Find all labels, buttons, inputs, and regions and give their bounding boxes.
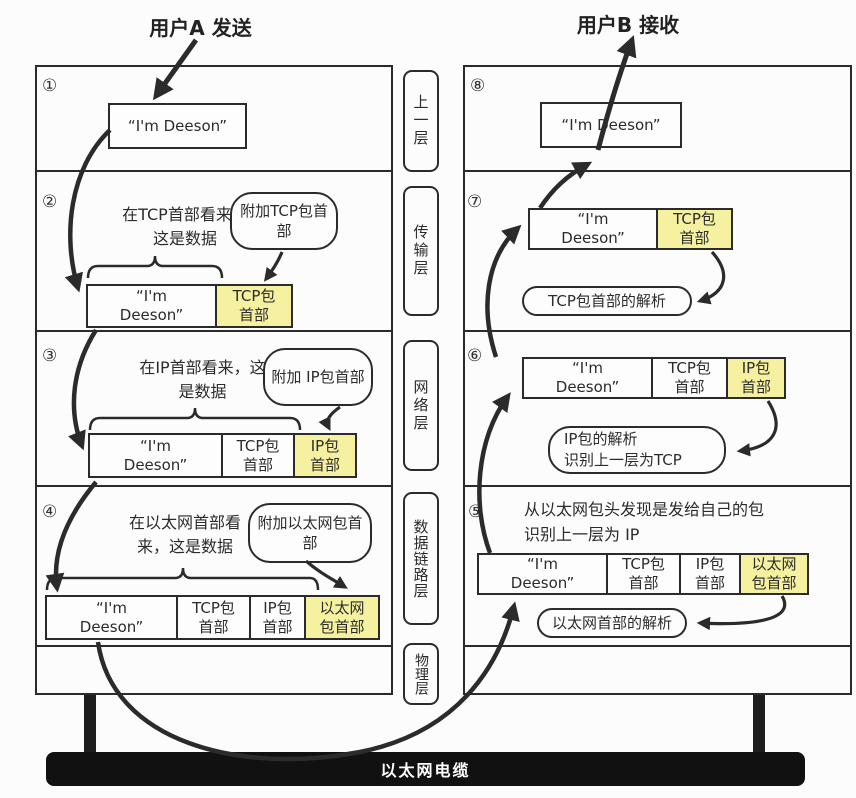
receiver-title: 用户B 接收 bbox=[558, 9, 698, 38]
ethernet-cable-bar: 以太网电缆 bbox=[46, 752, 805, 786]
step-2-data-segment: “I'mDeeson” bbox=[86, 284, 217, 328]
step-3-data-segment: “I'mDeeson” bbox=[88, 433, 223, 478]
step-2-tcp-header-segment: TCP包首部 bbox=[215, 284, 293, 328]
step-3-note-line1: 在IP首部看来，这 bbox=[120, 356, 285, 380]
step-8-message-box: “I'm Deeson” bbox=[540, 102, 682, 148]
step-3-ip-header-segment: IP包首部 bbox=[293, 433, 357, 478]
data-line1: “I'm bbox=[572, 359, 603, 378]
step-6-data-segment: “I'mDeeson” bbox=[522, 357, 653, 399]
step-7-number: ⑦ bbox=[467, 192, 482, 212]
step-2-number: ② bbox=[42, 192, 57, 212]
step-6-ip-header-segment: IP包首部 bbox=[726, 357, 786, 399]
step-5-note: 从以太网包头发现是发给自己的包 识别上一层为 IP bbox=[524, 498, 834, 548]
step-1-message-box: “I'm Deeson” bbox=[108, 103, 247, 149]
tcp-line1: TCP包 bbox=[673, 210, 716, 229]
step-5-note-line2: 识别上一层为 IP bbox=[524, 523, 834, 548]
step-5-number: ⑤ bbox=[468, 502, 483, 522]
step-3-bubble: 附加 IP包首部 bbox=[263, 348, 373, 406]
receiver-cable-connector bbox=[753, 695, 765, 753]
tcp-line1: TCP包 bbox=[233, 287, 276, 306]
receiver-divider-3 bbox=[465, 485, 850, 487]
tcp-line1: TCP包 bbox=[237, 437, 280, 456]
step-5-packet: “I'mDeeson” TCP包首部 IP包首部 以太网包首部 bbox=[477, 553, 809, 595]
tcp-line1: TCP包 bbox=[192, 599, 235, 618]
data-line1: “I'm bbox=[140, 437, 171, 456]
step-4-tcp-header-segment: TCP包首部 bbox=[176, 595, 251, 640]
tcp-line2: 首部 bbox=[674, 378, 704, 397]
step-6-tcp-header-segment: TCP包首部 bbox=[651, 357, 728, 399]
step-2-bubble: 附加TCP包首部 bbox=[230, 192, 338, 250]
receiver-divider-4 bbox=[465, 645, 850, 647]
eth-line2: 包首部 bbox=[751, 574, 796, 593]
tcp-line2: 首部 bbox=[239, 306, 269, 325]
ip-line1: IP包 bbox=[742, 359, 770, 378]
layer-upper: 上一层 bbox=[403, 70, 439, 172]
ip-line2: 首部 bbox=[310, 456, 340, 475]
eth-line2: 包首部 bbox=[319, 618, 364, 637]
data-line2: Deeson” bbox=[80, 618, 143, 637]
ip-line2: 首部 bbox=[695, 574, 725, 593]
step-6-bubble-line2: 识别上一层为TCP bbox=[564, 450, 682, 471]
ip-line1: IP包 bbox=[311, 437, 339, 456]
step-4-number: ④ bbox=[42, 502, 57, 522]
step-2-packet: “I'mDeeson” TCP包首部 bbox=[86, 284, 293, 328]
tcp-line2: 首部 bbox=[243, 456, 273, 475]
data-line2: Deeson” bbox=[556, 378, 619, 397]
data-line1: “I'm bbox=[96, 599, 127, 618]
tcp-line1: TCP包 bbox=[668, 359, 711, 378]
receiver-divider-1 bbox=[465, 170, 850, 172]
ip-line1: IP包 bbox=[263, 599, 291, 618]
step-3-note-line2: 是数据 bbox=[120, 380, 285, 404]
step-1-number: ① bbox=[42, 76, 57, 96]
step-4-packet: “I'mDeeson” TCP包首部 IP包首部 以太网包首部 bbox=[45, 595, 380, 640]
ip-line2: 首部 bbox=[741, 378, 771, 397]
data-line2: Deeson” bbox=[124, 456, 187, 475]
ip-line2: 首部 bbox=[262, 618, 292, 637]
step-5-eth-header-segment: 以太网包首部 bbox=[739, 553, 809, 595]
layer-physical: 物理层 bbox=[403, 643, 439, 705]
step-6-bubble-line1: IP包的解析 bbox=[564, 429, 637, 450]
step-3-tcp-header-segment: TCP包首部 bbox=[221, 433, 295, 478]
step-4-ip-header-segment: IP包首部 bbox=[249, 595, 306, 640]
tcp-line2: 首部 bbox=[198, 618, 228, 637]
step-5-data-segment: “I'mDeeson” bbox=[477, 553, 608, 595]
step-6-number: ⑥ bbox=[467, 346, 482, 366]
sender-cable-connector bbox=[84, 695, 96, 753]
step-5-ip-header-segment: IP包首部 bbox=[679, 553, 741, 595]
step-3-number: ③ bbox=[42, 346, 57, 366]
tcpip-encapsulation-diagram: 用户A 发送 用户B 接收 上一层 传输层 网络层 数据链路层 物理层 ① ② … bbox=[0, 0, 856, 798]
step-3-note: 在IP首部看来，这 是数据 bbox=[120, 356, 285, 404]
step-4-note: 在以太网首部看 来，这是数据 bbox=[105, 511, 265, 559]
layer-transport: 传输层 bbox=[403, 186, 439, 316]
step-7-bubble: TCP包首部的解析 bbox=[522, 286, 692, 316]
step-6-bubble: IP包的解析 识别上一层为TCP bbox=[548, 426, 726, 474]
step-4-eth-header-segment: 以太网包首部 bbox=[304, 595, 380, 640]
eth-line1: 以太网 bbox=[751, 555, 796, 574]
step-5-tcp-header-segment: TCP包首部 bbox=[606, 553, 681, 595]
data-line2: Deeson” bbox=[120, 306, 183, 325]
ip-line1: IP包 bbox=[696, 555, 724, 574]
tcp-line2: 首部 bbox=[679, 229, 709, 248]
step-7-data-segment: “I'mDeeson” bbox=[528, 208, 658, 250]
step-3-packet: “I'mDeeson” TCP包首部 IP包首部 bbox=[88, 433, 357, 478]
step-6-packet: “I'mDeeson” TCP包首部 IP包首部 bbox=[522, 357, 786, 399]
sender-divider-4 bbox=[37, 645, 391, 647]
data-line1: “I'm bbox=[136, 287, 167, 306]
step-4-note-line2: 来，这是数据 bbox=[105, 535, 265, 559]
data-line2: Deeson” bbox=[511, 574, 574, 593]
data-line1: “I'm bbox=[578, 210, 609, 229]
step-5-note-line1: 从以太网包头发现是发给自己的包 bbox=[524, 498, 834, 523]
eth-line1: 以太网 bbox=[319, 599, 364, 618]
step-4-note-line1: 在以太网首部看 bbox=[105, 511, 265, 535]
sender-divider-1 bbox=[37, 170, 391, 172]
step-7-packet: “I'mDeeson” TCP包首部 bbox=[528, 208, 733, 250]
tcp-line1: TCP包 bbox=[622, 555, 665, 574]
sender-divider-2 bbox=[37, 330, 391, 332]
step-5-bubble: 以太网首部的解析 bbox=[537, 608, 687, 638]
step-8-number: ⑧ bbox=[470, 76, 485, 96]
receiver-divider-2 bbox=[465, 330, 850, 332]
sender-title: 用户A 发送 bbox=[118, 12, 283, 41]
step-4-data-segment: “I'mDeeson” bbox=[45, 595, 178, 640]
step-4-bubble: 附加以太网包首部 bbox=[248, 503, 372, 563]
data-line2: Deeson” bbox=[561, 229, 624, 248]
data-line1: “I'm bbox=[527, 555, 558, 574]
layer-datalink: 数据链路层 bbox=[403, 492, 439, 625]
sender-divider-3 bbox=[37, 485, 391, 487]
step-7-tcp-header-segment: TCP包首部 bbox=[656, 208, 733, 250]
layer-network: 网络层 bbox=[403, 340, 439, 471]
tcp-line2: 首部 bbox=[628, 574, 658, 593]
